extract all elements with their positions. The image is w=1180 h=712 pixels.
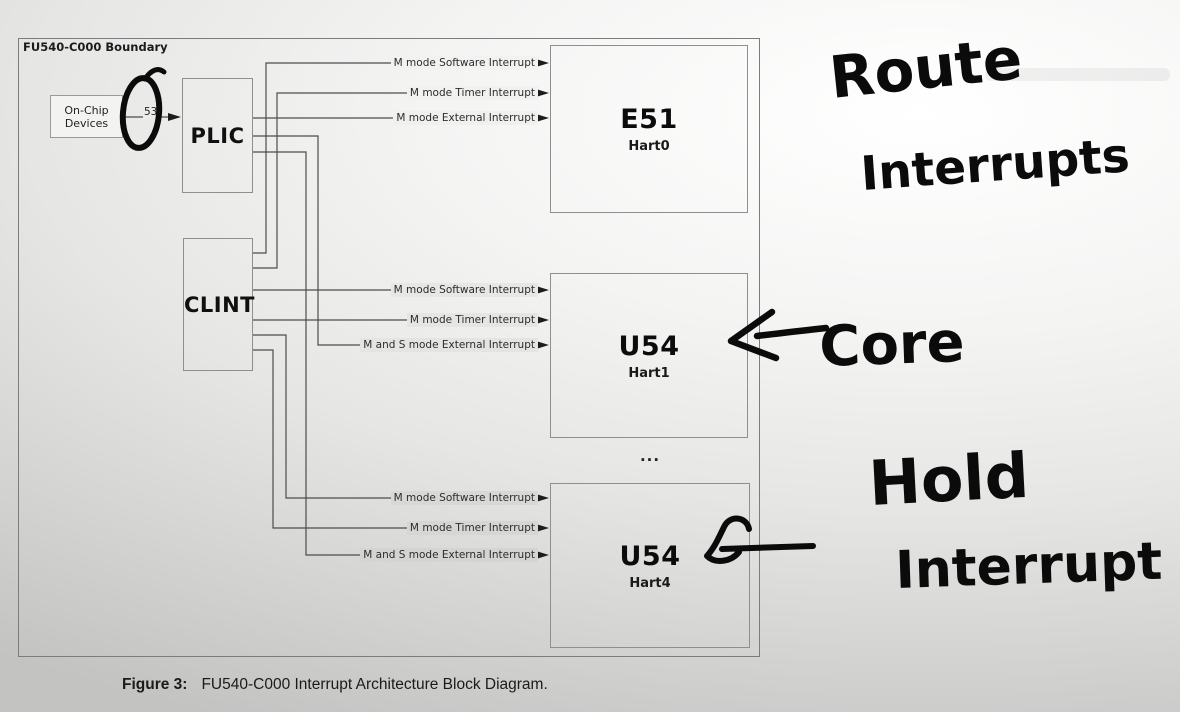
interrupt-wire-label: M mode External Interrupt <box>393 111 538 125</box>
faint-smudge <box>985 68 1170 81</box>
interrupt-wire-label: M mode Timer Interrupt <box>407 521 538 535</box>
core-u54-hart4-box: U54 Hart4 <box>550 483 750 648</box>
interrupt-wire-label: M mode Software Interrupt <box>391 56 538 70</box>
route-text: Route <box>826 24 1025 112</box>
core-hart: Hart0 <box>628 139 669 154</box>
interrupt-wire-label: M and S mode External Interrupt <box>360 548 538 562</box>
annotated-slide: FU540-C000 Boundary On-Chip Devices 53 P… <box>0 0 1180 712</box>
onchip-line2: Devices <box>65 117 108 130</box>
clint-label: CLINT <box>184 293 252 317</box>
interrupt-wire-label: M mode Software Interrupt <box>391 283 538 297</box>
onchip-line1: On-Chip <box>64 104 108 117</box>
figure-caption-label: Figure 3: <box>122 676 187 693</box>
interrupt-source-count: 53 <box>143 106 158 118</box>
core-text: Core <box>818 310 965 380</box>
core-hart: Hart1 <box>628 366 669 381</box>
interrupts-text: Interrupts <box>859 128 1131 202</box>
interrupt-wire-label: M and S mode External Interrupt <box>360 338 538 352</box>
boundary-title: FU540-C000 Boundary <box>23 40 168 54</box>
ellipsis-more-harts: ... <box>630 447 670 465</box>
interrupt-text: Interrupt <box>894 532 1163 601</box>
plic-label: PLIC <box>183 124 252 148</box>
route-interrupts-annotation: Route Interrupts <box>826 24 1131 202</box>
interrupt-wire-label: M mode Timer Interrupt <box>407 313 538 327</box>
clint-box: CLINT <box>183 238 253 371</box>
core-u54-hart1-box: U54 Hart1 <box>550 273 748 438</box>
interrupt-wire-label: M mode Timer Interrupt <box>407 86 538 100</box>
figure-caption: Figure 3:FU540-C000 Interrupt Architectu… <box>122 676 548 694</box>
hold-interrupt-annotation: Hold Interrupt <box>867 439 1163 601</box>
on-chip-devices-box: On-Chip Devices <box>50 95 123 138</box>
core-name: U54 <box>620 541 681 572</box>
plic-box: PLIC <box>182 78 253 193</box>
core-annotation: Core <box>731 310 966 380</box>
figure-caption-text: FU540-C000 Interrupt Architecture Block … <box>201 676 547 693</box>
core-name: E51 <box>620 104 678 135</box>
core-hart: Hart4 <box>629 576 670 591</box>
interrupt-wire-label: M mode Software Interrupt <box>391 491 538 505</box>
core-e51-box: E51 Hart0 <box>550 45 748 213</box>
core-name: U54 <box>619 331 680 362</box>
hold-text: Hold <box>867 439 1031 520</box>
